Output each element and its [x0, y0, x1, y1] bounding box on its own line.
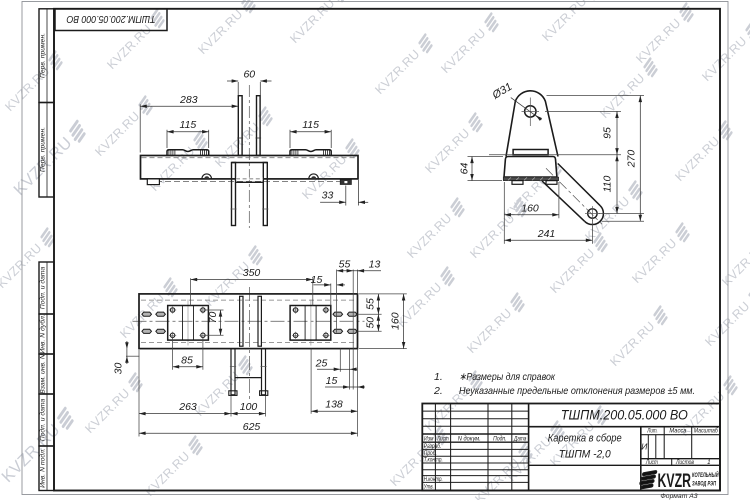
svg-text:Проб.: Проб. — [424, 451, 437, 457]
svg-text:Утв.: Утв. — [423, 484, 434, 490]
svg-text:ЗАВОД РЭП: ЗАВОД РЭП — [692, 482, 716, 488]
svg-text:KVZR: KVZR — [658, 471, 692, 492]
svg-text:15: 15 — [311, 274, 323, 286]
svg-text:241: 241 — [537, 228, 556, 240]
svg-text:25: 25 — [315, 358, 328, 370]
svg-text:Лист: Лист — [437, 436, 449, 442]
svg-text:60: 60 — [243, 69, 255, 81]
svg-text:1: 1 — [707, 459, 711, 466]
svg-text:Масштаб: Масштаб — [694, 427, 718, 435]
svg-text:Формат А3: Формат А3 — [660, 493, 697, 500]
svg-text:Подп. и дата: Подп. и дата — [38, 399, 46, 442]
svg-text:2.: 2. — [433, 385, 443, 397]
svg-text:160: 160 — [521, 202, 539, 214]
svg-text:33: 33 — [322, 190, 334, 202]
svg-text:ТШПМ.200.05.000 ВО: ТШПМ.200.05.000 ВО — [561, 406, 688, 422]
svg-text:Н.контр.: Н.контр. — [424, 477, 443, 483]
svg-text:55: 55 — [339, 258, 351, 270]
svg-text:Лист: Лист — [645, 459, 658, 466]
svg-text:Дата: Дата — [513, 436, 527, 442]
svg-text:115: 115 — [180, 119, 197, 131]
svg-text:283: 283 — [179, 94, 198, 106]
svg-text:ТШПМ.200.05.000 ВО: ТШПМ.200.05.000 ВО — [66, 13, 155, 24]
svg-text:100: 100 — [240, 401, 258, 413]
svg-text:64: 64 — [458, 163, 470, 175]
svg-text:Каретка в сборе: Каретка в сборе — [548, 433, 622, 445]
svg-text:Разраб.: Разраб. — [424, 444, 442, 450]
svg-text:ТШПМ -2,0: ТШПМ -2,0 — [559, 449, 612, 461]
svg-text:263: 263 — [178, 401, 197, 413]
svg-text:85: 85 — [181, 354, 193, 366]
svg-text:Т.контр.: Т.контр. — [424, 458, 443, 464]
svg-text:70: 70 — [207, 312, 219, 324]
svg-text:Изм: Изм — [424, 436, 434, 442]
svg-text:∗Размеры для справок: ∗Размеры для справок — [459, 371, 556, 383]
svg-text:Подп.: Подп. — [493, 436, 507, 442]
svg-text:115: 115 — [302, 119, 319, 131]
svg-text:625: 625 — [243, 421, 261, 433]
svg-text:1.: 1. — [434, 371, 443, 383]
svg-text:Подп. и дата: Подп. и дата — [38, 267, 46, 310]
svg-text:13: 13 — [369, 258, 381, 270]
svg-text:И: И — [641, 442, 648, 452]
svg-text:15: 15 — [326, 375, 338, 387]
svg-text:160: 160 — [390, 312, 402, 330]
svg-text:Взам. инв. N: Взам. инв. N — [39, 354, 46, 394]
svg-text:110: 110 — [602, 175, 614, 192]
svg-text:Перв. примен.: Перв. примен. — [39, 33, 46, 78]
svg-text:Лит.: Лит. — [647, 428, 658, 435]
svg-text:350: 350 — [243, 267, 261, 279]
svg-text:50: 50 — [365, 317, 377, 329]
svg-text:30: 30 — [112, 363, 124, 375]
svg-text:55: 55 — [365, 298, 377, 310]
svg-text:138: 138 — [325, 399, 343, 411]
svg-text:Неуказанные предельные отклоне: Неуказанные предельные отклонения размер… — [459, 385, 695, 397]
svg-text:Инв. N дубл.: Инв. N дубл. — [38, 314, 46, 353]
svg-text:Листов: Листов — [675, 459, 694, 466]
svg-text:КОТЕЛЬНЫЙ: КОТЕЛЬНЫЙ — [692, 471, 719, 479]
svg-text:95: 95 — [602, 127, 614, 139]
svg-text:Инв. N подл.: Инв. N подл. — [38, 448, 46, 488]
svg-text:N докум.: N докум. — [458, 436, 481, 442]
svg-text:270: 270 — [625, 150, 637, 169]
svg-text:Ø31: Ø31 — [490, 81, 515, 103]
svg-text:Масса: Масса — [669, 428, 686, 435]
svg-text:Перв. примен.: Перв. примен. — [39, 127, 46, 172]
